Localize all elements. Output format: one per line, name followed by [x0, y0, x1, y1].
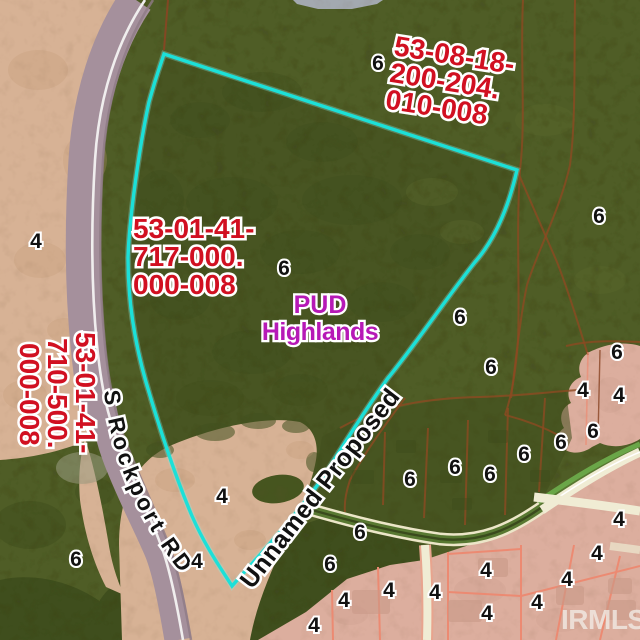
svg-text:4: 4 — [191, 550, 203, 573]
svg-text:4: 4 — [613, 384, 625, 407]
svg-text:717-000.: 717-000. — [133, 241, 244, 272]
svg-text:6: 6 — [324, 553, 336, 576]
svg-text:4: 4 — [429, 581, 441, 604]
svg-text:4: 4 — [613, 508, 625, 531]
svg-text:4: 4 — [216, 485, 228, 508]
svg-text:6: 6 — [354, 521, 366, 544]
svg-text:4: 4 — [383, 579, 395, 602]
svg-text:6: 6 — [485, 356, 497, 379]
svg-text:Highlands: Highlands — [262, 318, 378, 346]
svg-text:4: 4 — [338, 589, 350, 612]
svg-text:4: 4 — [481, 602, 493, 625]
svg-text:6: 6 — [449, 456, 461, 479]
svg-text:4: 4 — [531, 591, 543, 614]
svg-text:4: 4 — [591, 542, 603, 565]
svg-text:6: 6 — [484, 463, 496, 486]
svg-text:6: 6 — [454, 306, 466, 329]
svg-text:6: 6 — [555, 431, 567, 454]
svg-text:710-500.: 710-500. — [42, 338, 73, 449]
svg-text:6: 6 — [70, 548, 82, 571]
svg-text:6: 6 — [278, 257, 290, 280]
svg-text:6: 6 — [372, 52, 384, 75]
svg-text:000-008: 000-008 — [14, 343, 45, 446]
svg-text:53-01-41-: 53-01-41- — [133, 213, 254, 244]
svg-text:6: 6 — [611, 341, 623, 364]
svg-text:4: 4 — [577, 379, 589, 402]
svg-text:6: 6 — [587, 420, 599, 443]
svg-text:PUD: PUD — [294, 291, 347, 319]
svg-text:IRMLS: IRMLS — [561, 604, 640, 635]
svg-text:6: 6 — [593, 205, 605, 228]
svg-text:53-01-41-: 53-01-41- — [70, 332, 101, 453]
svg-text:4: 4 — [561, 568, 573, 591]
svg-text:4: 4 — [30, 230, 42, 253]
svg-text:6: 6 — [404, 468, 416, 491]
svg-text:4: 4 — [480, 559, 492, 582]
svg-text:000-008: 000-008 — [133, 269, 236, 300]
svg-text:4: 4 — [308, 614, 320, 637]
svg-text:6: 6 — [518, 443, 530, 466]
